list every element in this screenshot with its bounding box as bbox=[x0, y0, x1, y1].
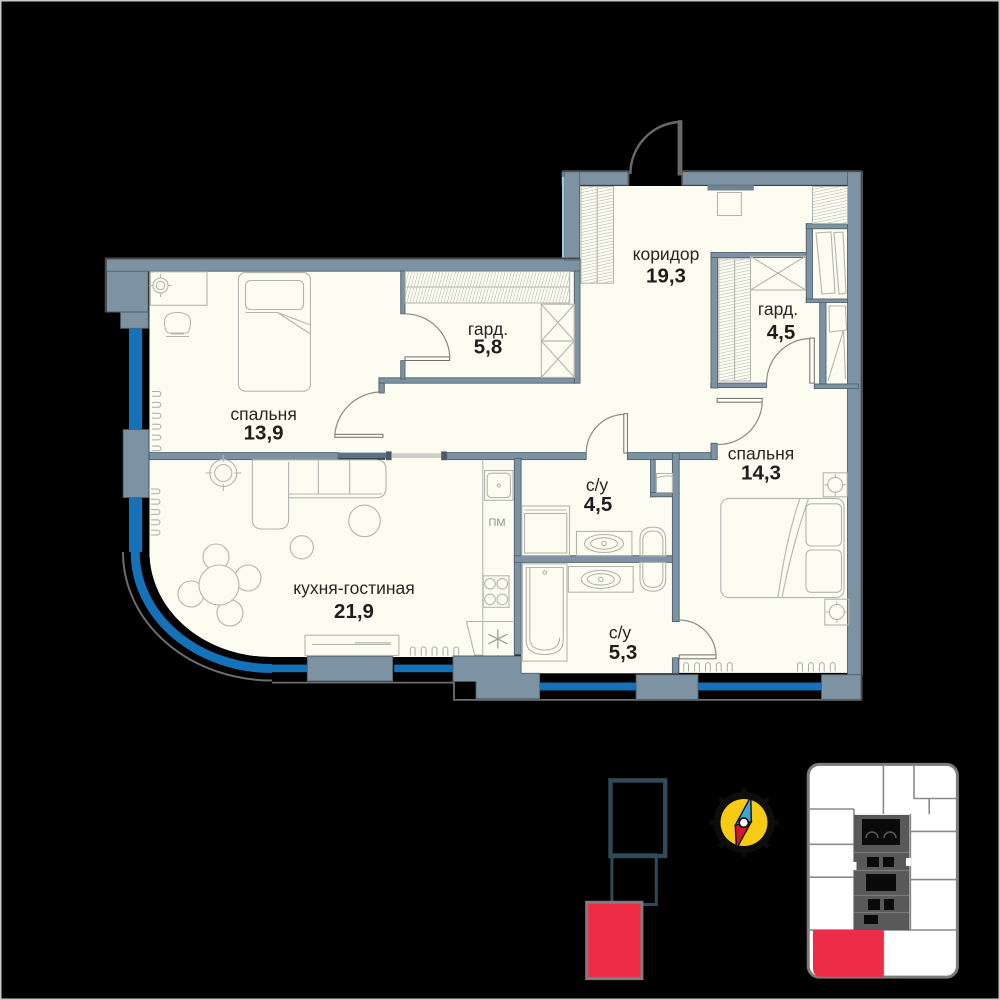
svg-text:14,3: 14,3 bbox=[741, 462, 781, 485]
svg-text:гард.: гард. bbox=[758, 299, 798, 319]
svg-text:19,3: 19,3 bbox=[646, 265, 686, 288]
svg-text:5,8: 5,8 bbox=[474, 336, 503, 359]
svg-text:ПМ: ПМ bbox=[488, 517, 505, 529]
svg-text:5,3: 5,3 bbox=[609, 641, 638, 664]
svg-text:с/у: с/у bbox=[586, 475, 609, 495]
svg-text:кухня-гостиная: кухня-гостиная bbox=[293, 578, 414, 598]
svg-text:21,9: 21,9 bbox=[334, 600, 374, 623]
svg-text:спальня: спальня bbox=[728, 444, 794, 464]
svg-text:4,5: 4,5 bbox=[767, 321, 796, 344]
svg-text:13,9: 13,9 bbox=[244, 422, 284, 445]
svg-text:с/у: с/у bbox=[609, 623, 632, 643]
svg-text:коридор: коридор bbox=[633, 244, 700, 264]
svg-text:4,5: 4,5 bbox=[584, 493, 613, 516]
